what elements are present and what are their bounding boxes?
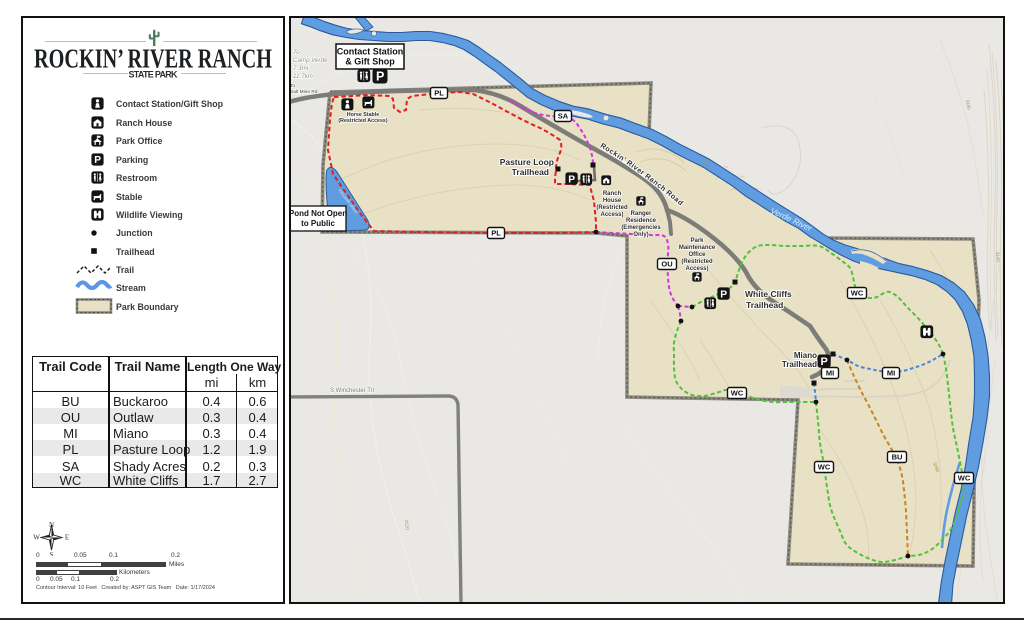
svg-text:Trailhead: Trailhead: [782, 360, 817, 369]
svg-text:11.7km: 11.7km: [293, 73, 313, 80]
svg-text:Office: Office: [688, 252, 706, 258]
svg-text:E: E: [65, 534, 69, 542]
svg-text:To: To: [293, 49, 300, 56]
svg-text:Trailhead: Trailhead: [746, 300, 783, 310]
svg-text:Salt Mine Rd: Salt Mine Rd: [291, 89, 318, 95]
svg-text:House: House: [603, 198, 622, 204]
svg-text:S Winchester Trl: S Winchester Trl: [330, 388, 374, 394]
svg-text:(Restricted Access): (Restricted Access): [338, 118, 387, 124]
svg-text:SA: SA: [558, 112, 569, 121]
svg-text:(Restricted: (Restricted: [681, 259, 713, 265]
svg-text:Miano: Miano: [794, 351, 817, 360]
svg-text:Access): Access): [685, 266, 708, 272]
svg-text:(Emergencies: (Emergencies: [621, 225, 661, 231]
svg-text:& Gift Shop: & Gift Shop: [345, 57, 395, 67]
svg-text:MI: MI: [826, 369, 834, 378]
svg-text:STATE PARK: STATE PARK: [129, 70, 179, 80]
svg-text:Maintenance: Maintenance: [679, 245, 716, 251]
svg-text:WC: WC: [851, 289, 864, 298]
svg-text:Access): Access): [600, 212, 623, 218]
svg-text:3120: 3120: [404, 520, 410, 531]
svg-text:Ranch: Ranch: [603, 191, 622, 197]
svg-text:Ranger: Ranger: [631, 211, 652, 217]
svg-text:Residence: Residence: [626, 218, 657, 224]
svg-text:Trailhead: Trailhead: [512, 167, 549, 177]
svg-text:Park: Park: [690, 238, 704, 244]
svg-text:PL: PL: [491, 229, 501, 238]
svg-text:(Restricted: (Restricted: [596, 205, 628, 211]
svg-text:P: P: [94, 155, 101, 166]
svg-text:Contact Station: Contact Station: [337, 47, 404, 57]
svg-text:WC: WC: [731, 389, 744, 398]
svg-text:7.3mi: 7.3mi: [293, 65, 309, 72]
svg-text:Camp Verde: Camp Verde: [293, 57, 328, 64]
svg-text:Only): Only): [633, 232, 648, 238]
svg-text:W: W: [33, 534, 40, 542]
svg-text:WC: WC: [818, 463, 831, 472]
svg-text:PL: PL: [434, 89, 444, 98]
svg-text:White Cliffs: White Cliffs: [745, 289, 792, 299]
svg-text:to Public: to Public: [301, 219, 335, 228]
svg-text:BU: BU: [892, 453, 903, 462]
svg-text:Pasture Loop: Pasture Loop: [500, 157, 554, 167]
svg-text:Pond Not Open: Pond Not Open: [291, 209, 347, 218]
svg-text:3140: 3140: [995, 252, 1001, 263]
svg-text:To: To: [291, 83, 295, 89]
svg-text:OU: OU: [661, 260, 672, 269]
svg-text:WC: WC: [958, 474, 971, 483]
svg-text:MI: MI: [887, 369, 895, 378]
